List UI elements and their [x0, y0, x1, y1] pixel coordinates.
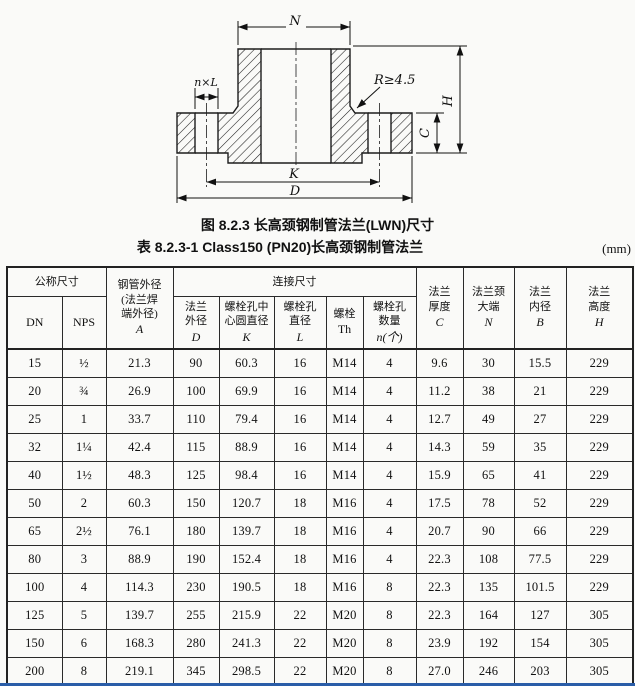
table-cell: M14 [326, 349, 363, 378]
table-cell: 20 [7, 378, 62, 406]
table-cell: 120.7 [219, 490, 274, 518]
table-cell: 49 [463, 406, 514, 434]
figure-caption: 图 8.2.3 长高颈钢制管法兰(LWN)尺寸 [0, 215, 635, 235]
table-row: 25133.711079.416M14412.74927229 [7, 406, 633, 434]
table-cell: 229 [566, 490, 633, 518]
table-row: 1004114.3230190.518M16822.3135101.5229 [7, 574, 633, 602]
col-header-H-sym: H [567, 315, 633, 331]
col-header-L: 螺栓孔 直径 L [274, 297, 326, 350]
col-header-K: 螺栓孔中 心圆直径 K [219, 297, 274, 350]
col-header-L-sym: L [275, 330, 326, 346]
table-cell: 23.9 [416, 630, 463, 658]
table-cell: 4 [363, 349, 416, 378]
table-cell: 305 [566, 658, 633, 686]
col-header-N-sym: N [464, 315, 514, 331]
table-cell: 33.7 [106, 406, 173, 434]
table-row: 15½21.39060.316M1449.63015.5229 [7, 349, 633, 378]
col-header-A-sym: A [107, 322, 173, 338]
table-cell: M16 [326, 490, 363, 518]
table-cell: 200 [7, 658, 62, 686]
table-cell: M14 [326, 434, 363, 462]
table-cell: 8 [363, 602, 416, 630]
dim-label-K: K [288, 167, 300, 182]
table-cell: 22.3 [416, 546, 463, 574]
table-cell: 229 [566, 518, 633, 546]
table-cell: 229 [566, 574, 633, 602]
table-cell: 22 [274, 630, 326, 658]
table-cell: 18 [274, 518, 326, 546]
table-cell: M14 [326, 406, 363, 434]
table-cell: 21 [514, 378, 566, 406]
table-cell: 69.9 [219, 378, 274, 406]
table-cell: 8 [363, 574, 416, 602]
table-cell: 154 [514, 630, 566, 658]
table-cell: 18 [274, 490, 326, 518]
table-cell: 60.3 [106, 490, 173, 518]
table-cell: 21.3 [106, 349, 173, 378]
table-cell: 9.6 [416, 349, 463, 378]
table-cell: 4 [363, 462, 416, 490]
table-cell: 20.7 [416, 518, 463, 546]
table-cell: 11.2 [416, 378, 463, 406]
col-header-A: 钢管外径 (法兰焊 端外径) A [106, 267, 173, 349]
table-cell: 1¼ [62, 434, 106, 462]
table-cell: 27.0 [416, 658, 463, 686]
table-cell: ½ [62, 349, 106, 378]
table-cell: 4 [363, 490, 416, 518]
table-body: 15½21.39060.316M1449.63015.522920¾26.910… [7, 349, 633, 686]
table-cell: 305 [566, 602, 633, 630]
table-cell: 1½ [62, 462, 106, 490]
col-header-Th: 螺栓 Th [326, 297, 363, 350]
table-cell: 127 [514, 602, 566, 630]
table-cell: 22.3 [416, 602, 463, 630]
col-header-N-cn: 法兰颈 大端 [464, 285, 514, 314]
table-cell: 2 [62, 490, 106, 518]
table-cell: 101.5 [514, 574, 566, 602]
table-cell: 246 [463, 658, 514, 686]
col-header-C-cn: 法兰 厚度 [417, 285, 463, 314]
scanned-document-page: N n×L R≥4.5 H C K D 图 8.2.3 长高颈钢制管法兰(LWN… [0, 0, 635, 686]
table-cell: 4 [363, 406, 416, 434]
table-cell: 139.7 [106, 602, 173, 630]
table-cell: 16 [274, 434, 326, 462]
col-header-C-sym: C [417, 315, 463, 331]
table-cell: 229 [566, 462, 633, 490]
table-cell: 78 [463, 490, 514, 518]
table-cell: 180 [173, 518, 219, 546]
table-cell: 8 [62, 658, 106, 686]
table-cell: 12.7 [416, 406, 463, 434]
dimension-table: 公称尺寸 钢管外径 (法兰焊 端外径) A 连接尺寸 法兰 厚度 C 法兰颈 大… [6, 266, 634, 686]
table-cell: M14 [326, 462, 363, 490]
col-header-B-cn: 法兰 内径 [515, 285, 566, 314]
table-cell: 215.9 [219, 602, 274, 630]
table-cell: 255 [173, 602, 219, 630]
col-header-L-cn: 螺栓孔 直径 [275, 300, 326, 329]
table-cell: 22 [274, 602, 326, 630]
table-cell: 241.3 [219, 630, 274, 658]
table-cell: 8 [363, 658, 416, 686]
dim-label-N: N [288, 14, 301, 29]
col-header-D-cn: 法兰 外径 [174, 300, 219, 329]
table-cell: 125 [7, 602, 62, 630]
table-cell: 42.4 [106, 434, 173, 462]
table-cell: 22 [274, 658, 326, 686]
table-cell: 4 [363, 546, 416, 574]
table-cell: 5 [62, 602, 106, 630]
table-cell: 22.3 [416, 574, 463, 602]
table-cell: 18 [274, 574, 326, 602]
table-cell: 229 [566, 546, 633, 574]
table-cell: 32 [7, 434, 62, 462]
table-cell: 135 [463, 574, 514, 602]
col-header-K-sym: K [220, 330, 274, 346]
table-cell: 280 [173, 630, 219, 658]
dim-label-C: C [418, 128, 433, 138]
table-cell: 190 [173, 546, 219, 574]
table-cell: 88.9 [219, 434, 274, 462]
table-cell: 38 [463, 378, 514, 406]
table-row: 401½48.312598.416M14415.96541229 [7, 462, 633, 490]
group-header-nominal-size: 公称尺寸 [7, 267, 106, 297]
col-header-NPS: NPS [62, 297, 106, 350]
table-cell: 65 [463, 462, 514, 490]
table-cell: 190.5 [219, 574, 274, 602]
table-cell: M20 [326, 658, 363, 686]
table-cell: 90 [463, 518, 514, 546]
table-cell: 35 [514, 434, 566, 462]
table-row: 2008219.1345298.522M20827.0246203305 [7, 658, 633, 686]
table-cell: 100 [173, 378, 219, 406]
table-cell: 125 [173, 462, 219, 490]
col-header-B-sym: B [515, 315, 566, 331]
table-cell: 52 [514, 490, 566, 518]
group-header-connection: 连接尺寸 [173, 267, 416, 297]
col-header-Th-cn: 螺栓 [327, 307, 363, 321]
table-cell: 16 [274, 406, 326, 434]
col-header-H: 法兰 高度 H [566, 267, 633, 349]
table-cell: 4 [363, 434, 416, 462]
table-cell: 48.3 [106, 462, 173, 490]
table-cell: 16 [274, 349, 326, 378]
table-cell: 229 [566, 378, 633, 406]
table-cell: 25 [7, 406, 62, 434]
table-cell: 80 [7, 546, 62, 574]
table-cell: 230 [173, 574, 219, 602]
table-cell: 8 [363, 630, 416, 658]
table-cell: 30 [463, 349, 514, 378]
table-cell: 15.5 [514, 349, 566, 378]
table-row: 80388.9190152.418M16422.310877.5229 [7, 546, 633, 574]
table-cell: 1 [62, 406, 106, 434]
table-row: 20¾26.910069.916M14411.23821229 [7, 378, 633, 406]
table-cell: 60.3 [219, 349, 274, 378]
col-header-NPS-sym: NPS [63, 315, 106, 331]
col-header-K-cn: 螺栓孔中 心圆直径 [220, 300, 274, 329]
table-cell: 76.1 [106, 518, 173, 546]
table-cell: 26.9 [106, 378, 173, 406]
table-cell: M20 [326, 630, 363, 658]
table-cell: 16 [274, 378, 326, 406]
dimension-table-wrap: 公称尺寸 钢管外径 (法兰焊 端外径) A 连接尺寸 法兰 厚度 C 法兰颈 大… [6, 266, 633, 686]
table-cell: 152.4 [219, 546, 274, 574]
table-cell: ¾ [62, 378, 106, 406]
dim-label-D: D [289, 184, 301, 199]
table-cell: 27 [514, 406, 566, 434]
col-header-A-cn: 钢管外径 (法兰焊 端外径) [107, 278, 173, 321]
table-cell: 219.1 [106, 658, 173, 686]
col-header-D-sym: D [174, 330, 219, 346]
table-cell: 114.3 [106, 574, 173, 602]
table-cell: 110 [173, 406, 219, 434]
table-cell: 150 [7, 630, 62, 658]
table-caption: 表 8.2.3-1 Class150 (PN20)长高颈钢制管法兰 [0, 237, 560, 257]
table-cell: M14 [326, 378, 363, 406]
dim-label-nxL: n×L [194, 76, 218, 89]
table-cell: 65 [7, 518, 62, 546]
col-header-DN-sym: DN [8, 315, 62, 331]
table-cell: 40 [7, 462, 62, 490]
table-cell: 16 [274, 462, 326, 490]
table-cell: 79.4 [219, 406, 274, 434]
table-cell: 3 [62, 546, 106, 574]
table-cell: 2½ [62, 518, 106, 546]
table-cell: 192 [463, 630, 514, 658]
table-cell: 90 [173, 349, 219, 378]
table-cell: 14.3 [416, 434, 463, 462]
table-cell: 17.5 [416, 490, 463, 518]
table-cell: 115 [173, 434, 219, 462]
col-header-N: 法兰颈 大端 N [463, 267, 514, 349]
table-cell: 4 [363, 378, 416, 406]
table-cell: M16 [326, 518, 363, 546]
flange-body-section [177, 49, 412, 163]
col-header-n-sym: n(个) [364, 330, 416, 346]
table-cell: 66 [514, 518, 566, 546]
table-cell: 59 [463, 434, 514, 462]
table-cell: M16 [326, 546, 363, 574]
table-cell: M16 [326, 574, 363, 602]
table-cell: 41 [514, 462, 566, 490]
col-header-n-cn: 螺栓孔 数量 [364, 300, 416, 329]
table-cell: 168.3 [106, 630, 173, 658]
table-row: 1255139.7255215.922M20822.3164127305 [7, 602, 633, 630]
table-cell: 305 [566, 630, 633, 658]
table-cell: 229 [566, 434, 633, 462]
flange-section-drawing: N n×L R≥4.5 H C K D [0, 0, 635, 212]
table-cell: 139.7 [219, 518, 274, 546]
table-cell: 6 [62, 630, 106, 658]
table-cell: 50 [7, 490, 62, 518]
col-header-D: 法兰 外径 D [173, 297, 219, 350]
table-row: 1506168.3280241.322M20823.9192154305 [7, 630, 633, 658]
table-cell: 4 [363, 518, 416, 546]
table-row: 652½76.1180139.718M16420.79066229 [7, 518, 633, 546]
table-cell: 150 [173, 490, 219, 518]
dim-label-H: H [441, 95, 456, 108]
table-cell: 98.4 [219, 462, 274, 490]
unit-label: (mm) [602, 241, 631, 257]
table-cell: 77.5 [514, 546, 566, 574]
table-cell: 229 [566, 406, 633, 434]
table-cell: 203 [514, 658, 566, 686]
col-header-C: 法兰 厚度 C [416, 267, 463, 349]
table-cell: 229 [566, 349, 633, 378]
col-header-Th-sym: Th [327, 322, 363, 338]
col-header-n: 螺栓孔 数量 n(个) [363, 297, 416, 350]
col-header-B: 法兰 内径 B [514, 267, 566, 349]
table-cell: 298.5 [219, 658, 274, 686]
table-cell: 164 [463, 602, 514, 630]
table-cell: 345 [173, 658, 219, 686]
col-header-H-cn: 法兰 高度 [567, 285, 633, 314]
table-cell: 108 [463, 546, 514, 574]
table-cell: 15.9 [416, 462, 463, 490]
table-cell: 18 [274, 546, 326, 574]
col-header-DN: DN [7, 297, 62, 350]
dim-label-R: R≥4.5 [373, 73, 415, 88]
table-cell: 88.9 [106, 546, 173, 574]
table-row: 50260.3150120.718M16417.57852229 [7, 490, 633, 518]
table-cell: 4 [62, 574, 106, 602]
table-cell: M20 [326, 602, 363, 630]
table-row: 321¼42.411588.916M14414.35935229 [7, 434, 633, 462]
table-cell: 100 [7, 574, 62, 602]
table-cell: 15 [7, 349, 62, 378]
